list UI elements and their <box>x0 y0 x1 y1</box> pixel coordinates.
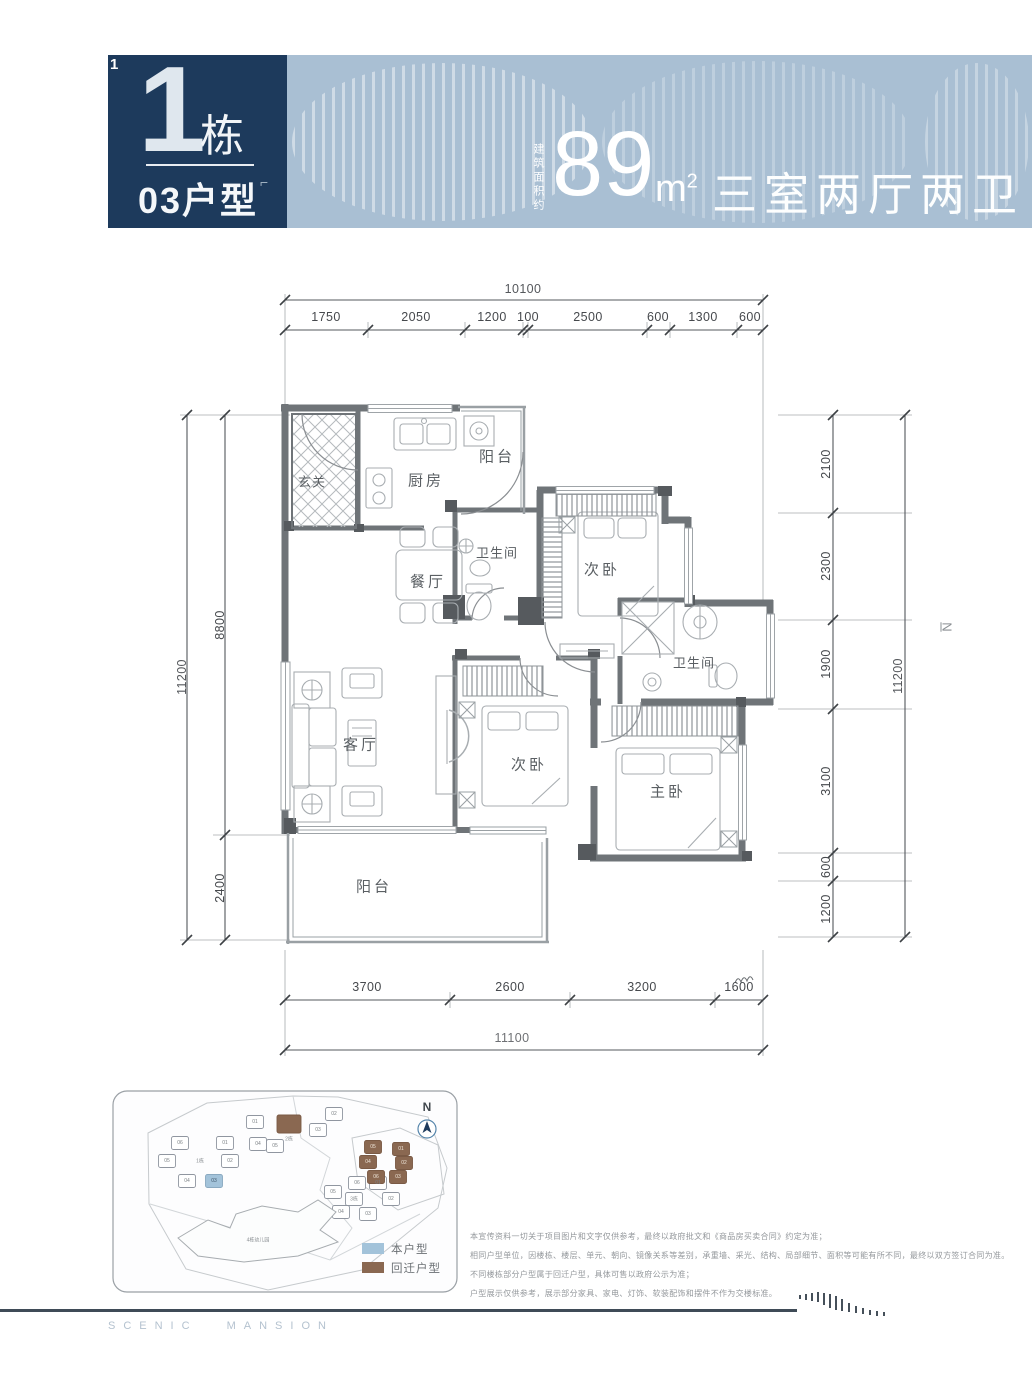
footer-rule <box>0 1309 797 1312</box>
disclaimer-line-2: 相同户型单位，因楼栋、楼层、单元、朝向、镜像关系等差别，承重墙、采光、结构、局部… <box>470 1250 1010 1261</box>
legend-swatch-relocation <box>362 1262 384 1273</box>
sliding-door <box>470 827 546 834</box>
floorplan-canvas <box>0 0 1032 1400</box>
cluster3-name: 3栋 <box>350 1196 358 1203</box>
dim-top-seg-5: 600 <box>647 310 669 324</box>
floorplan-page: 1 1 栋 03户型 ⌐ 建筑面积约 89 m2 三室两厅两卫 <box>0 0 1032 1400</box>
cluster3-unit: 05 <box>330 1189 336 1195</box>
dim-left-seg-1: 2400 <box>213 873 227 902</box>
room-label-balcony-bottom: 阳台 <box>356 876 392 897</box>
cluster1-unit: 05 <box>164 1158 170 1164</box>
cluster3-unit: 02 <box>388 1196 394 1202</box>
dim-right-seg-5: 1200 <box>819 894 833 923</box>
room-label-bathroom-2: 卫生间 <box>673 653 715 672</box>
room-label-kitchen: 厨房 <box>408 470 444 491</box>
cluster3-unit: 03 <box>365 1211 371 1217</box>
dim-right-seg-4: 600 <box>819 856 833 878</box>
side-north-mark: N <box>940 622 955 631</box>
room-label-master: 主卧 <box>650 781 686 802</box>
room-label-bedroom-3: 次卧 <box>511 754 547 775</box>
cluster1-unit-highlighted: 03 <box>211 1178 217 1184</box>
disclaimer-line-4: 户型展示仅供参考，展示部分家具、家电、灯饰、软装配饰和摆件不作为交楼标准。 <box>470 1288 777 1299</box>
cluster5-unit: 05 <box>370 1144 376 1150</box>
cluster1-name: 1栋 <box>196 1158 204 1165</box>
cluster5-unit: 02 <box>401 1160 407 1166</box>
footer-flourish <box>800 1292 884 1316</box>
dim-bottom-seg-0: 3700 <box>352 980 381 994</box>
dim-left-seg-0: 8800 <box>213 610 227 639</box>
cluster2-unit: 04 <box>255 1141 261 1147</box>
legend-label-relocation: 回迁户型 <box>391 1260 441 1276</box>
dim-top-seg-1: 2050 <box>401 310 430 324</box>
cluster1-unit: 06 <box>177 1140 183 1146</box>
dim-bottom-seg-3: 1600 <box>724 980 753 994</box>
cluster5-unit: 06 <box>373 1174 379 1180</box>
dim-right-seg-3: 3100 <box>819 766 833 795</box>
cluster3-unit: 01 <box>375 1180 381 1186</box>
room-label-bathroom-1: 卫生间 <box>476 543 518 562</box>
dim-top-seg-2: 1200 <box>477 310 506 324</box>
dim-top-seg-3: 100 <box>517 310 539 324</box>
cluster5-unit: 03 <box>395 1174 401 1180</box>
cluster2-unit: 03 <box>315 1127 321 1133</box>
kindergarten-label: 4栋幼儿园 <box>247 1237 270 1244</box>
room-label-balcony-top: 阳台 <box>479 446 515 467</box>
dim-right-total: 11200 <box>891 658 905 694</box>
cluster1-unit: 02 <box>227 1158 233 1164</box>
cluster3-unit: 06 <box>354 1180 360 1186</box>
cluster5-unit: 04 <box>365 1159 371 1165</box>
room-label-bedroom-2: 次卧 <box>584 559 620 580</box>
dim-top-seg-6: 1300 <box>688 310 717 324</box>
room-label-dining: 餐厅 <box>410 571 446 592</box>
cluster5-unit: 01 <box>398 1146 404 1152</box>
dim-top-seg-7: 600 <box>739 310 761 324</box>
brand-name: SCENIC MANSION <box>108 1320 334 1332</box>
disclaimer-line-3: 不同楼栋部分户型属于回迁户型，具体可售以政府公示为准； <box>470 1269 694 1280</box>
room-label-living: 客厅 <box>343 734 379 755</box>
dim-right-seg-2: 1900 <box>819 649 833 678</box>
dim-bottom-seg-2: 3200 <box>627 980 656 994</box>
cluster2-name: 2栋 <box>285 1136 293 1143</box>
dim-right-seg-1: 2300 <box>819 551 833 580</box>
disclaimer-line-1: 本宣传资料一切关于项目图片和文字仅供参考，最终以政府批文和《商品房买卖合同》约定… <box>470 1231 827 1242</box>
dim-top-total: 10100 <box>505 282 542 296</box>
dim-bottom-total: 11100 <box>495 1031 530 1045</box>
cluster2-unit: 01 <box>252 1119 258 1125</box>
legend-swatch-self <box>362 1243 384 1254</box>
room-label-entry: 玄关 <box>298 472 326 491</box>
cluster2-unit: 02 <box>331 1111 337 1117</box>
dim-left-total: 11200 <box>175 659 189 695</box>
cluster3-unit: 04 <box>338 1209 344 1215</box>
cluster1-unit: 04 <box>184 1178 190 1184</box>
compass-n-label: N <box>423 1100 432 1114</box>
cluster1-unit: 01 <box>222 1140 228 1146</box>
dim-bottom-seg-1: 2600 <box>495 980 524 994</box>
dim-top-seg-4: 2500 <box>573 310 602 324</box>
cluster2-unit: 05 <box>272 1143 278 1149</box>
dim-top-seg-0: 1750 <box>311 310 340 324</box>
legend-label-self: 本户型 <box>391 1241 429 1257</box>
dim-right-seg-0: 2100 <box>819 449 833 478</box>
